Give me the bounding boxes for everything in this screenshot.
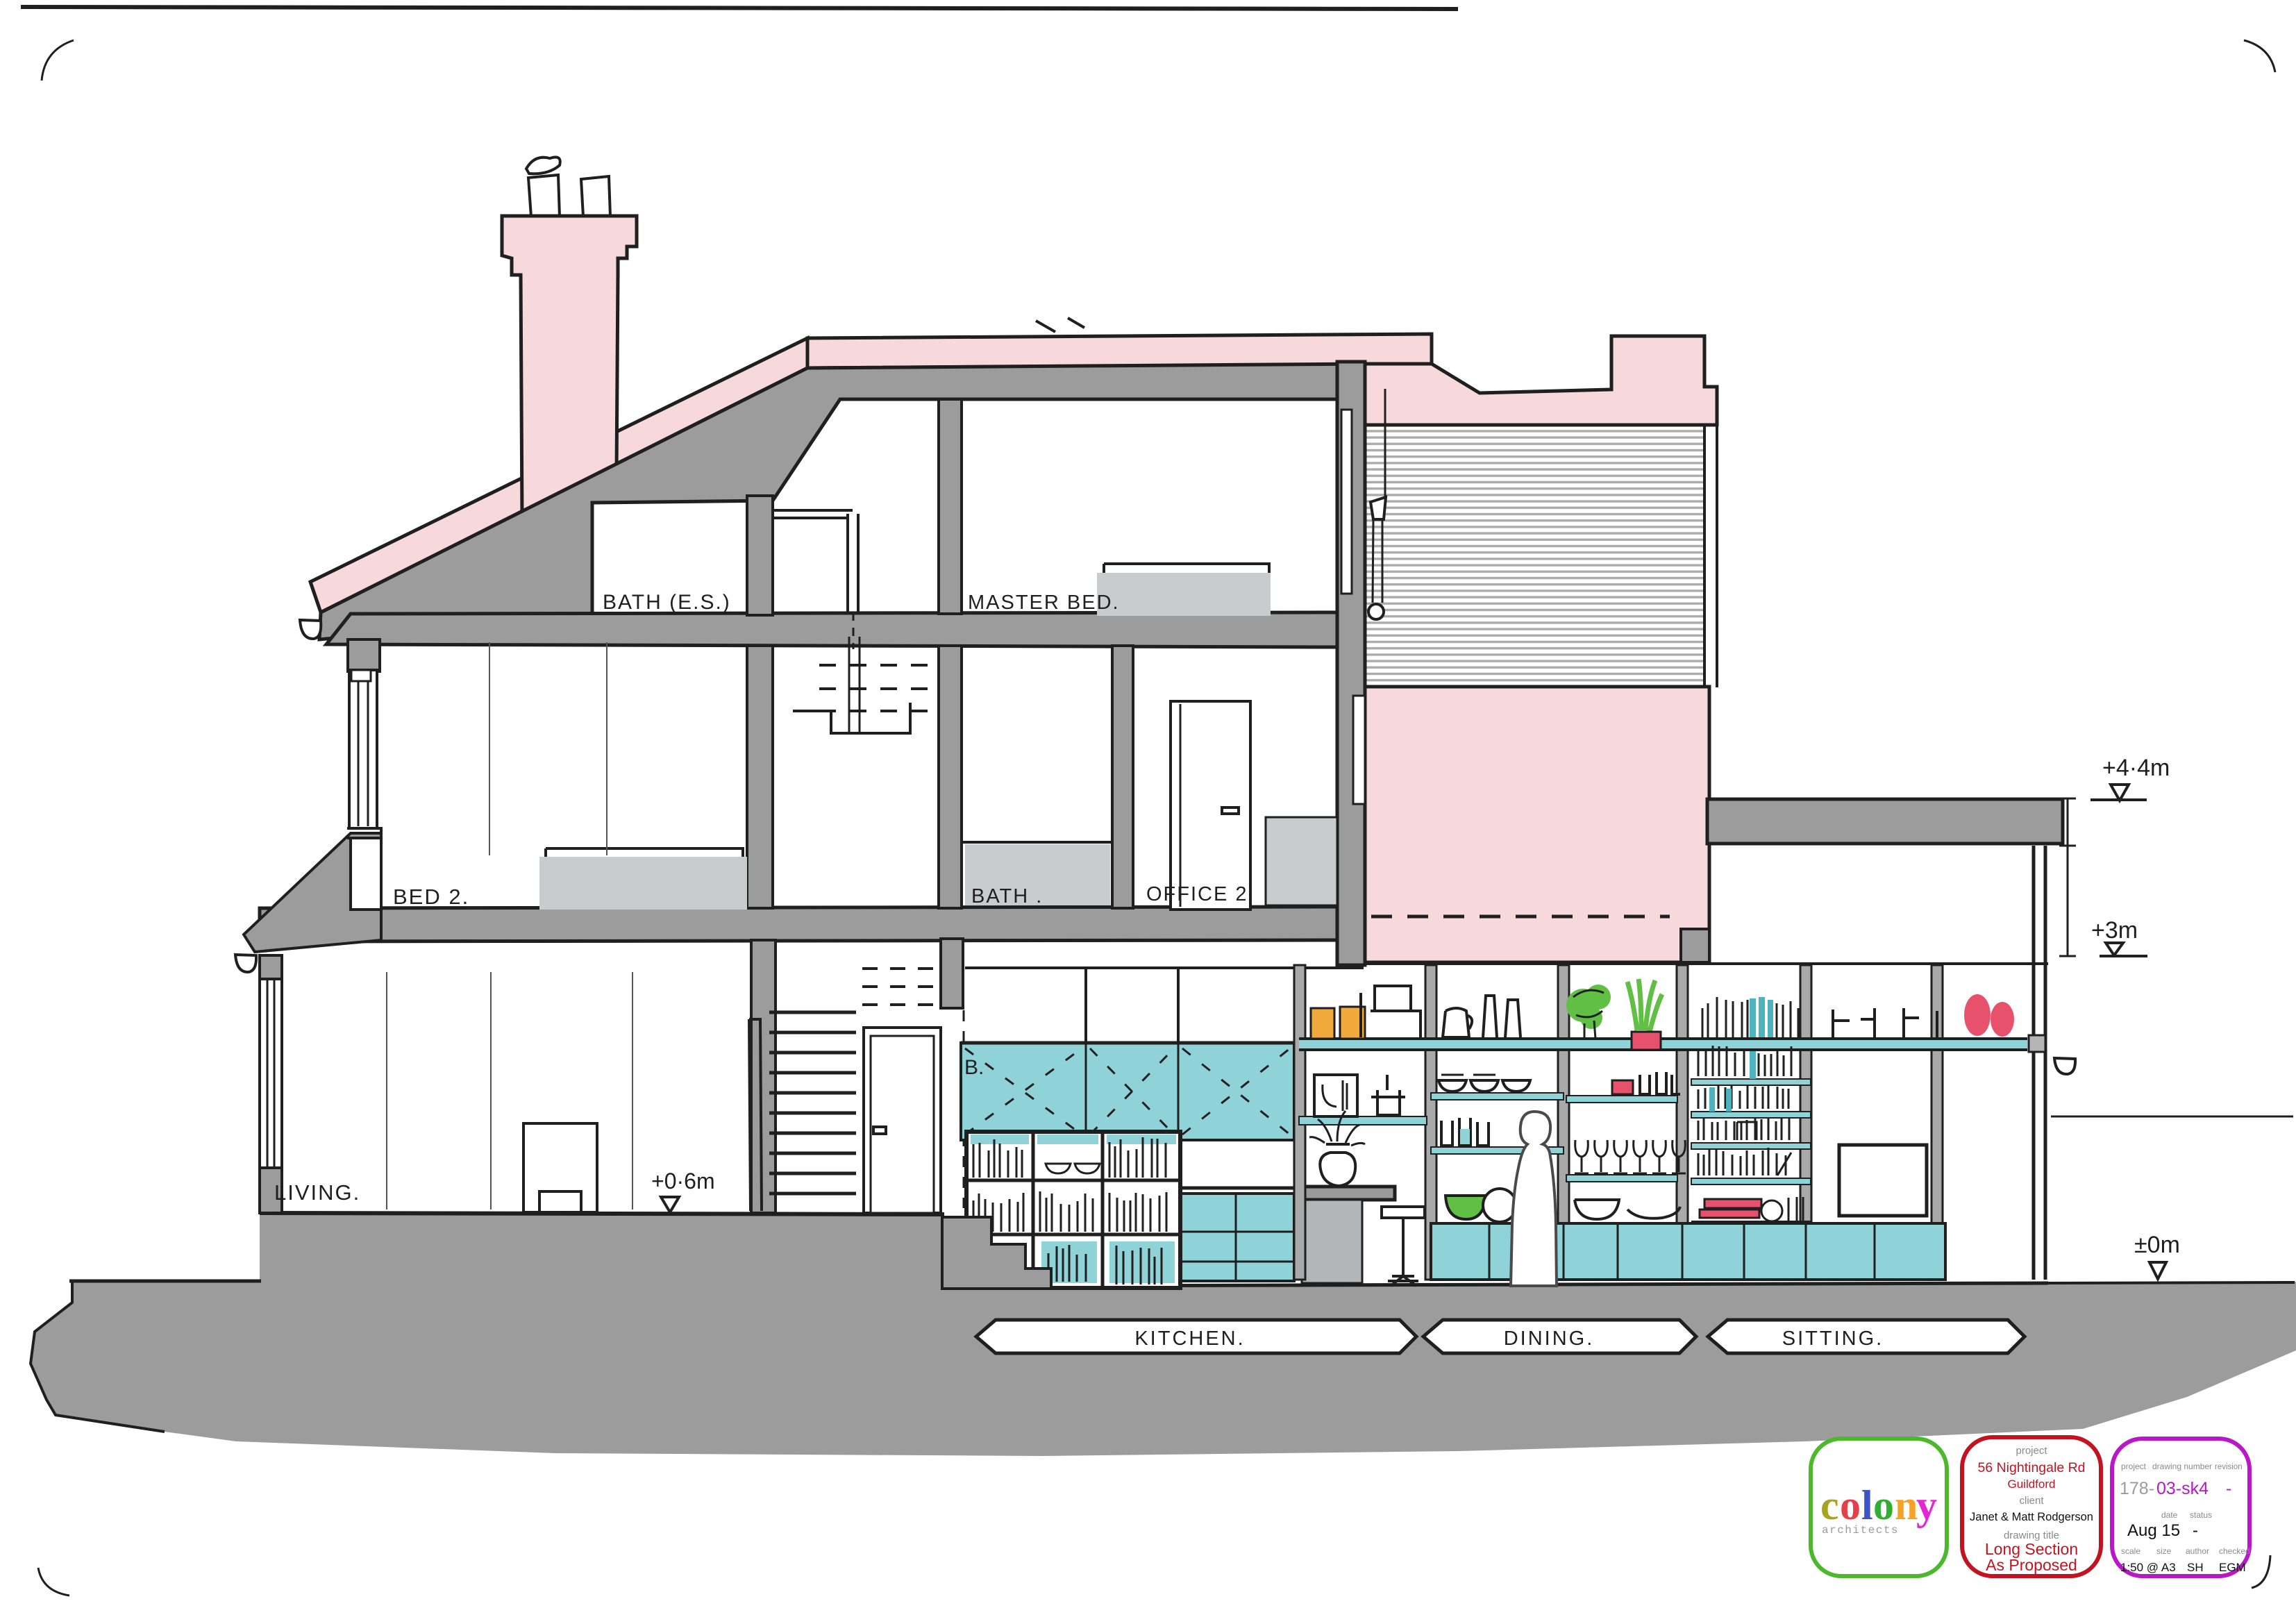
svg-text:scale: scale xyxy=(2121,1546,2140,1556)
svg-text:56 Nightingale Rd: 56 Nightingale Rd xyxy=(1977,1460,2085,1475)
svg-text:MASTER BED.: MASTER BED. xyxy=(968,592,1120,614)
svg-text:1:50 @ A3: 1:50 @ A3 xyxy=(2120,1561,2176,1574)
svg-text:architects: architects xyxy=(1822,1524,1899,1537)
svg-text:size: size xyxy=(2156,1546,2172,1556)
svg-text:EGM: EGM xyxy=(2219,1561,2246,1574)
svg-text:SITTING.: SITTING. xyxy=(1782,1328,1884,1350)
svg-text:revision: revision xyxy=(2215,1463,2243,1471)
svg-text:-: - xyxy=(2193,1521,2198,1540)
svg-text:project: project xyxy=(2016,1445,2047,1457)
svg-text:c: c xyxy=(1820,1482,1839,1528)
svg-text:Guildford: Guildford xyxy=(2008,1477,2056,1491)
svg-text:author: author xyxy=(2186,1546,2209,1556)
svg-text:03-sk4: 03-sk4 xyxy=(2156,1479,2209,1498)
svg-text:+0·6m: +0·6m xyxy=(651,1169,715,1194)
svg-text:n: n xyxy=(1895,1482,1918,1528)
svg-text:date: date xyxy=(2161,1510,2178,1520)
svg-text:checked: checked xyxy=(2219,1546,2250,1556)
svg-text:LIVING.: LIVING. xyxy=(274,1180,360,1205)
svg-text:l: l xyxy=(1861,1482,1873,1528)
svg-text:+3m: +3m xyxy=(2091,917,2138,944)
svg-text:DINING.: DINING. xyxy=(1504,1328,1595,1350)
svg-text:status: status xyxy=(2190,1510,2212,1520)
svg-text:KITCHEN.: KITCHEN. xyxy=(1134,1328,1245,1350)
svg-text:y: y xyxy=(1916,1482,1937,1528)
svg-text:+4·4m: +4·4m xyxy=(2102,755,2170,781)
svg-text:As Proposed: As Proposed xyxy=(1986,1556,2077,1574)
svg-text:OFFICE 2.: OFFICE 2. xyxy=(1146,883,1255,905)
svg-text:client: client xyxy=(2019,1495,2044,1507)
svg-text:project: project xyxy=(2121,1462,2147,1471)
svg-text:178-: 178- xyxy=(2120,1479,2154,1498)
svg-text:o: o xyxy=(1873,1482,1894,1528)
svg-text:o: o xyxy=(1840,1482,1861,1528)
svg-text:drawing number: drawing number xyxy=(2152,1462,2212,1471)
svg-text:BED 2.: BED 2. xyxy=(393,885,469,909)
svg-text:-: - xyxy=(2226,1479,2231,1498)
svg-text:B.: B. xyxy=(964,1056,984,1079)
svg-text:Janet & Matt Rodgerson: Janet & Matt Rodgerson xyxy=(1970,1511,2093,1523)
svg-text:±0m: ±0m xyxy=(2134,1232,2180,1258)
svg-text:BATH .: BATH . xyxy=(971,885,1043,907)
svg-text:SH: SH xyxy=(2187,1561,2204,1574)
svg-text:BATH (E.S.): BATH (E.S.) xyxy=(603,591,731,614)
svg-text:Aug 15: Aug 15 xyxy=(2127,1521,2180,1540)
